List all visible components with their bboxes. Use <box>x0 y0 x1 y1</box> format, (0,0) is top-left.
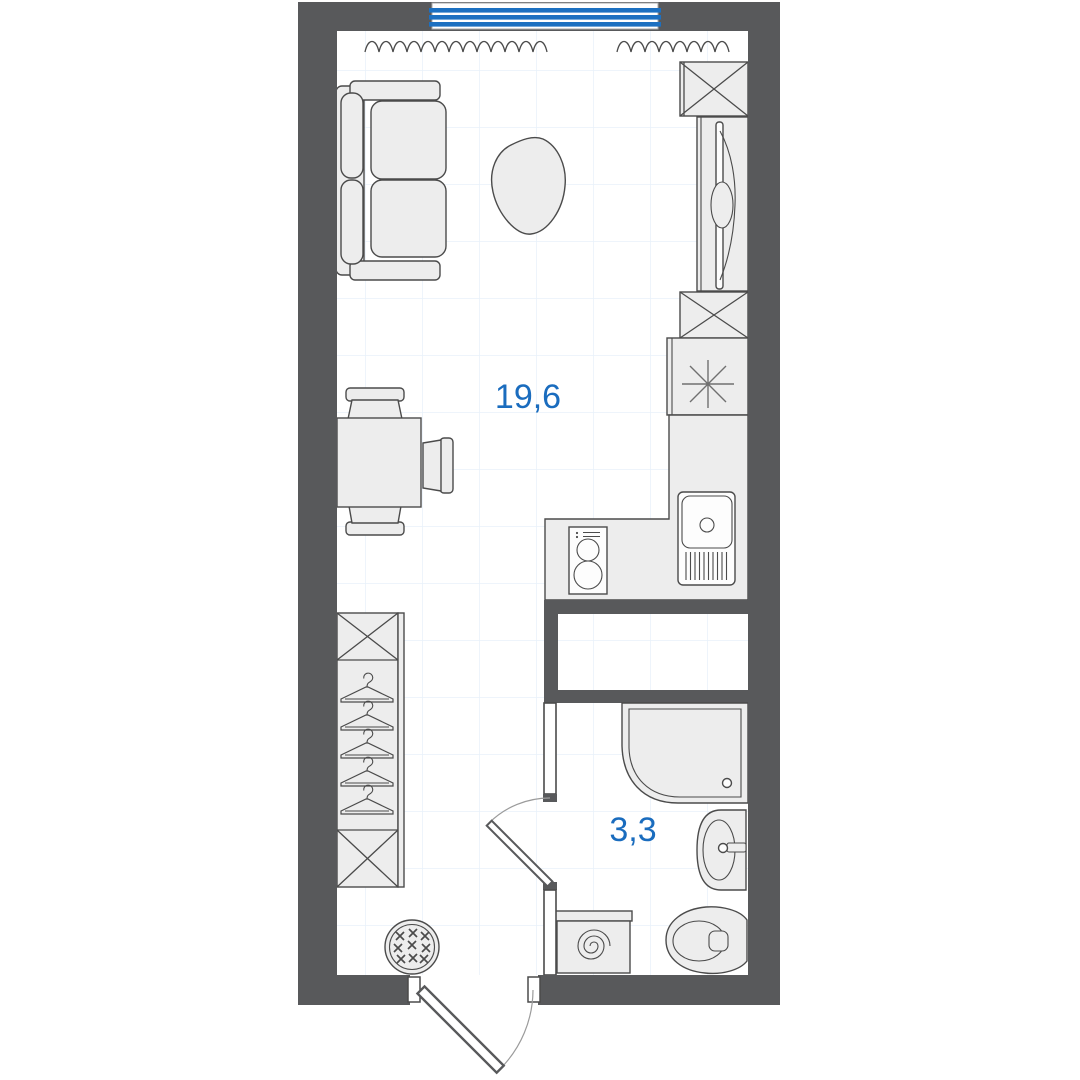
window <box>429 3 661 29</box>
tall-cabinet <box>697 117 748 291</box>
dining-table <box>337 418 421 507</box>
sofa <box>336 81 446 280</box>
entry-door <box>408 977 540 1073</box>
bathroom-area-label: 3,3 <box>609 811 656 849</box>
wardrobe <box>337 613 404 887</box>
kitchen-sink <box>678 492 735 585</box>
laundry-basket <box>385 920 439 974</box>
chair-top <box>346 388 404 419</box>
living-area-label: 19,6 <box>495 378 561 416</box>
shower-tray <box>622 703 748 803</box>
floor-plan: 19,6 3,3 <box>0 0 1080 1080</box>
refrigerator <box>667 338 748 415</box>
chair-bottom <box>346 506 404 535</box>
stove <box>569 527 607 594</box>
vent-shaft-top <box>680 62 748 116</box>
vent-shaft-bottom <box>680 292 748 338</box>
chair-right <box>423 438 453 493</box>
washing-machine <box>554 911 632 973</box>
washbasin <box>697 810 746 890</box>
toilet <box>666 907 747 974</box>
